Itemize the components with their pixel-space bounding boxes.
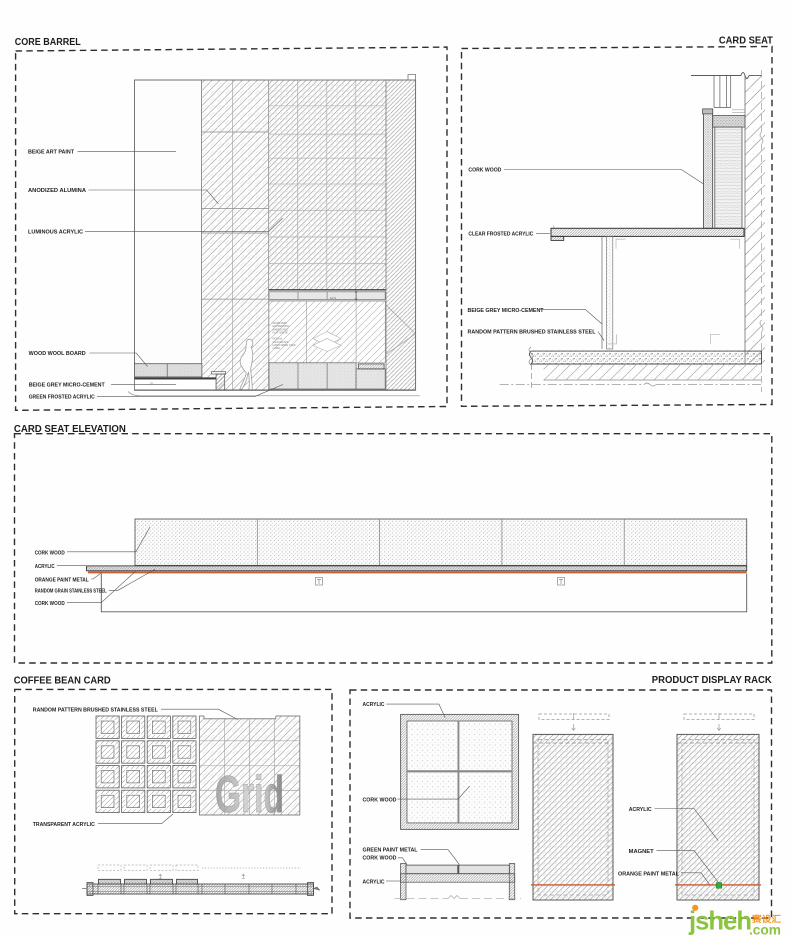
svg-text:CARD SEAT: CARD SEAT: [719, 36, 773, 47]
svg-text:GREEN PAINT METAL: GREEN PAINT METAL: [363, 848, 419, 854]
svg-text:MAGNET: MAGNET: [629, 849, 655, 855]
svg-text:CORK WOOD: CORK WOOD: [363, 797, 397, 803]
svg-text:RANDOM GRAIN STAINLESS STEEL: RANDOM GRAIN STAINLESS STEEL: [35, 589, 108, 595]
svg-text:jsheh: jsheh: [688, 906, 751, 936]
svg-text:ANODIZED ALUMINA: ANODIZED ALUMINA: [28, 188, 86, 194]
svg-text:PRODUCT DISPLAY RACK: PRODUCT DISPLAY RACK: [652, 675, 773, 686]
svg-text:.com: .com: [749, 923, 781, 937]
svg-text:1/2 S: 1/2 S: [330, 296, 336, 300]
svg-text:CORK WOOD: CORK WOOD: [363, 856, 397, 862]
svg-text:ACRYLIC: ACRYLIC: [363, 702, 385, 708]
svg-text:Grid: Grid: [215, 766, 284, 824]
svg-text:ACRYLIC: ACRYLIC: [35, 564, 55, 570]
svg-text:CORE BARREL: CORE BARREL: [15, 37, 81, 48]
svg-text:RANDOM PATTERN BRUSHED STAINLE: RANDOM PATTERN BRUSHED STAINLESS STEEL: [468, 330, 597, 336]
svg-text:CLEAR FROSTED ACRYLIC: CLEAR FROSTED ACRYLIC: [468, 232, 533, 238]
svg-text:ACRYLIC: ACRYLIC: [629, 807, 652, 813]
svg-text:ACRYLIC: ACRYLIC: [363, 879, 385, 885]
svg-text:CORK WOOD: CORK WOOD: [35, 550, 65, 556]
svg-text:赛设汇: 赛设汇: [751, 913, 782, 924]
svg-text:LUMINOUS ACRYLIC: LUMINOUS ACRYLIC: [28, 230, 83, 236]
svg-text:BEIGE GREY MICRO-CEMENT: BEIGE GREY MICRO-CEMENT: [29, 382, 106, 388]
svg-text:CORK WOOD: CORK WOOD: [35, 601, 65, 607]
svg-text:GREEN FROSTED ACRYLIC: GREEN FROSTED ACRYLIC: [29, 394, 95, 400]
svg-text:FLAT WHITE: FLAT WHITE: [273, 331, 288, 335]
svg-text:ORANGE PAINT METAL: ORANGE PAINT METAL: [618, 871, 680, 877]
svg-text:BEIGE GREY MICRO-CEMENT: BEIGE GREY MICRO-CEMENT: [468, 308, 545, 314]
svg-text:COFFEE BEAN CARD: COFFEE BEAN CARD: [14, 675, 111, 686]
svg-text:ORANGE PAINT METAL: ORANGE PAINT METAL: [35, 577, 90, 583]
svg-text:CORK WOOD: CORK WOOD: [468, 168, 501, 174]
svg-text:35: 35: [150, 382, 154, 386]
svg-text:TRANSPARENT ACRYLIC: TRANSPARENT ACRYLIC: [33, 822, 95, 828]
svg-text:RANDOM PATTERN BRUSHED STAINLE: RANDOM PATTERN BRUSHED STAINLESS STEEL: [33, 707, 159, 713]
svg-text:CORE: CORE: [273, 346, 281, 350]
svg-text:BEIGE ART PAINT: BEIGE ART PAINT: [28, 149, 75, 155]
svg-text:WOOD WOOL BOARD: WOOD WOOL BOARD: [29, 351, 86, 357]
